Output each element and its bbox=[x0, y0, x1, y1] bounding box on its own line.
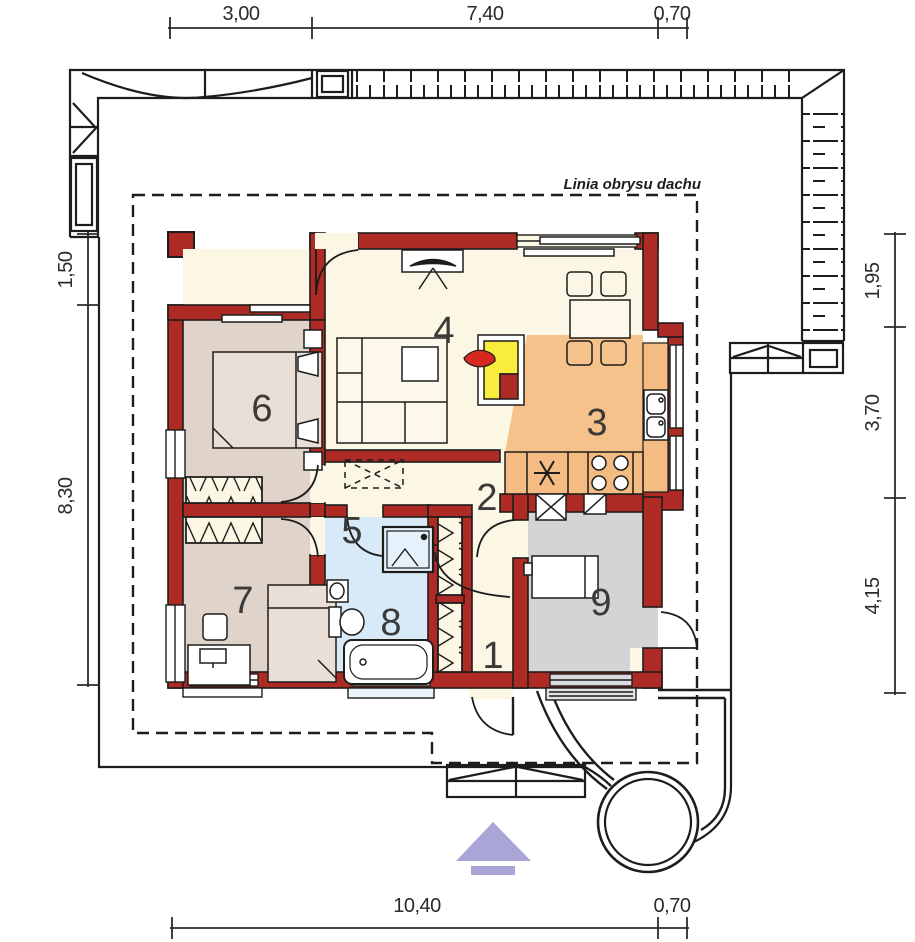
circular-patio-outer bbox=[598, 772, 698, 872]
entrance-canopy bbox=[447, 765, 585, 797]
door-back bbox=[661, 612, 697, 648]
dim-text-7-40: 7,40 bbox=[467, 3, 504, 25]
room-label-4: 4 bbox=[433, 310, 454, 352]
dim-text-4-15: 4,15 bbox=[862, 577, 884, 614]
room-label-3: 3 bbox=[586, 402, 607, 444]
dining-table bbox=[570, 300, 630, 338]
wall-right-upper bbox=[643, 233, 658, 330]
wall-top-main bbox=[358, 233, 517, 249]
kitchen-counter-bottom bbox=[505, 452, 643, 494]
floor-plan-drawing: Linia obrysu dachu bbox=[0, 0, 915, 942]
dim-text-8-30: 8,30 bbox=[55, 477, 77, 514]
toilet bbox=[329, 607, 364, 637]
room-label-6: 6 bbox=[251, 388, 272, 430]
circular-patio-inner bbox=[605, 779, 691, 865]
deck-boards-top bbox=[355, 70, 799, 98]
room-label-2: 2 bbox=[476, 477, 497, 519]
kitchen-counter-right bbox=[643, 343, 668, 492]
dim-text-3-70: 3,70 bbox=[862, 394, 884, 431]
north-arrow bbox=[456, 822, 531, 875]
shower bbox=[383, 527, 433, 572]
awning-curve-right bbox=[205, 78, 312, 97]
dim-text-10-40: 10,40 bbox=[393, 895, 441, 917]
window-well-right bbox=[730, 343, 843, 373]
dim-text-0-70-bottom: 0,70 bbox=[654, 895, 691, 917]
bathtub bbox=[344, 640, 433, 684]
deck-boards-right bbox=[802, 104, 843, 338]
door-front bbox=[472, 697, 513, 735]
dim-text-0-70-top: 0,70 bbox=[654, 3, 691, 25]
closet-shelving bbox=[438, 517, 462, 672]
roof-outline-label: Linia obrysu dachu bbox=[563, 176, 701, 193]
room-label-7: 7 bbox=[232, 580, 253, 622]
room-label-9: 9 bbox=[590, 582, 611, 624]
awning-curve-left bbox=[82, 73, 205, 98]
room-label-5: 5 bbox=[341, 510, 362, 552]
floor-plan-page: Linia obrysu dachu bbox=[0, 0, 915, 942]
terrace-door-gap bbox=[315, 233, 358, 249]
walkway-path bbox=[537, 690, 731, 830]
dim-left bbox=[77, 232, 99, 687]
doormat-grate bbox=[546, 688, 636, 700]
dim-text-3-00: 3,00 bbox=[223, 3, 260, 25]
window-sill-outside bbox=[183, 688, 262, 697]
terrace-corner-diagonal bbox=[802, 70, 844, 98]
bed-room7 bbox=[268, 585, 336, 682]
bathroom-sink bbox=[327, 580, 348, 602]
room-label-1: 1 bbox=[482, 635, 503, 677]
room-label-8: 8 bbox=[380, 602, 401, 644]
chair-room7 bbox=[203, 614, 227, 640]
dim-right bbox=[884, 232, 906, 695]
dim-bottom bbox=[170, 917, 689, 939]
dim-text-1-95: 1,95 bbox=[862, 262, 884, 299]
wall-living-hall bbox=[325, 450, 500, 462]
coffee-table bbox=[402, 347, 438, 381]
dim-text-1-50: 1,50 bbox=[55, 251, 77, 288]
utility-counter bbox=[524, 556, 598, 598]
